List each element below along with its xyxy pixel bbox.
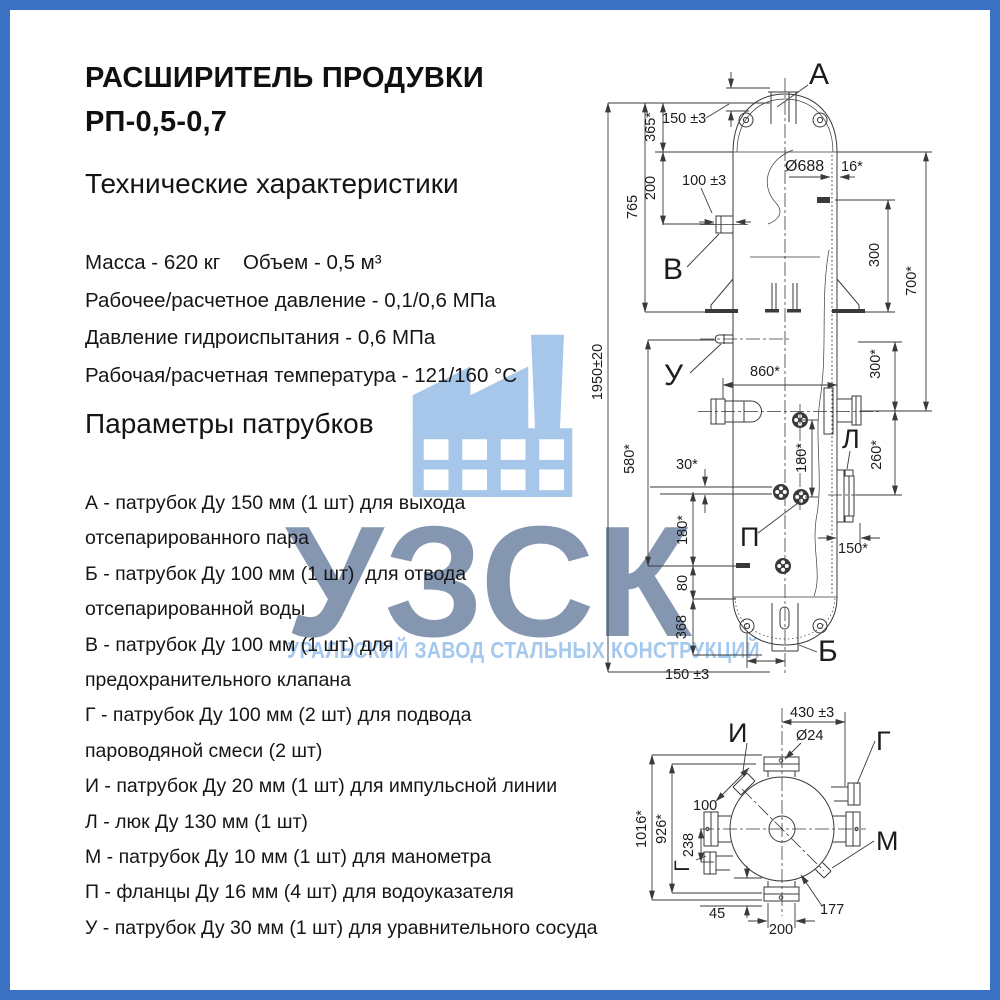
list-item: И - патрубок Ду 20 мм (1 шт) для импульс…: [85, 769, 597, 804]
tech-specs: Масса - 620 кг Объем - 0,5 м³ Рабочее/ра…: [85, 244, 517, 394]
list-item: В - патрубок Ду 100 мм (1 шт) для: [85, 628, 597, 663]
text-content: РАСШИРИТЕЛЬ ПРОДУВКИ РП-0,5-0,7 Техничес…: [0, 0, 1000, 1000]
list-item: Г - патрубок Ду 100 мм (2 шт) для подвод…: [85, 698, 597, 733]
spec-pressure: Рабочее/расчетное давление - 0,1/0,6 МПа: [85, 282, 517, 320]
list-item: П - фланцы Ду 16 мм (4 шт) для водоуказа…: [85, 875, 597, 910]
list-item: отсепарированного пара: [85, 521, 597, 556]
page-title-line2: РП-0,5-0,7: [85, 100, 484, 144]
list-item: А - патрубок Ду 150 мм (1 шт) для выхода: [85, 486, 597, 521]
page-title-line1: РАСШИРИТЕЛЬ ПРОДУВКИ: [85, 56, 484, 100]
spec-hydro-test: Давление гидроиспытания - 0,6 МПа: [85, 319, 517, 357]
spec-temperature: Рабочая/расчетная температура - 121/160 …: [85, 357, 517, 395]
list-item: Б - патрубок Ду 100 мм (1 шт) для отвода: [85, 557, 597, 592]
list-item: пароводяной смеси (2 шт): [85, 734, 597, 769]
list-item: Л - люк Ду 130 мм (1 шт): [85, 805, 597, 840]
document-page: УЗСК УРАЛЬСКИЙ ЗАВОД СТАЛЬНЫХ КОНСТРУКЦИ…: [0, 0, 1000, 1000]
nozzles-list: А - патрубок Ду 150 мм (1 шт) для выхода…: [85, 486, 597, 946]
page-title: РАСШИРИТЕЛЬ ПРОДУВКИ РП-0,5-0,7: [85, 56, 484, 144]
tech-heading: Технические характеристики: [85, 168, 459, 200]
list-item: У - патрубок Ду 30 мм (1 шт) для уравнит…: [85, 911, 597, 946]
spec-mass-volume: Масса - 620 кг Объем - 0,5 м³: [85, 244, 517, 282]
list-item: предохранительного клапана: [85, 663, 597, 698]
list-item: отсепарированной воды: [85, 592, 597, 627]
list-item: М - патрубок Ду 10 мм (1 шт) для маномет…: [85, 840, 597, 875]
nozzles-heading: Параметры патрубков: [85, 408, 374, 440]
